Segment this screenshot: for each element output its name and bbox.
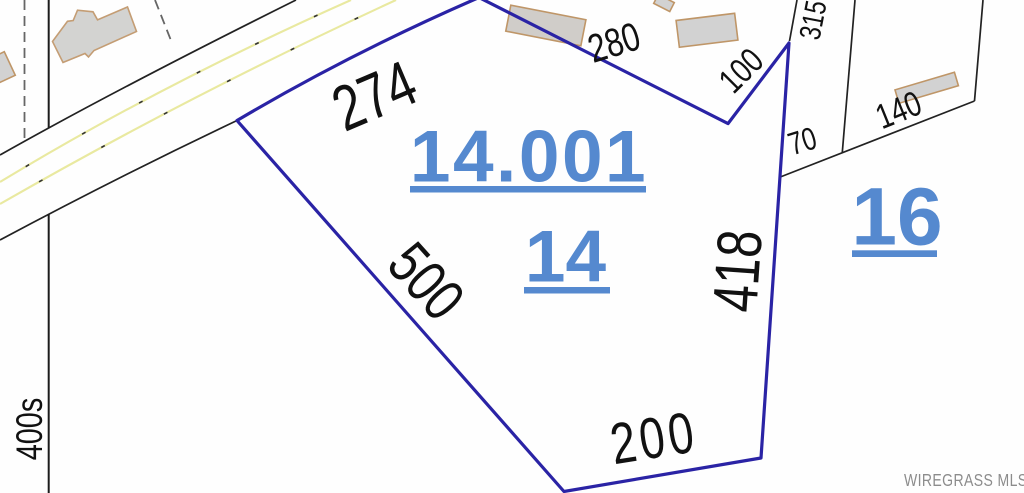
svg-text:200: 200 (606, 400, 702, 478)
svg-text:14.001: 14.001 (410, 117, 648, 198)
svg-text:WIREGRASS MLS: WIREGRASS MLS (904, 470, 1024, 490)
svg-text:400s: 400s (10, 398, 51, 461)
svg-text:16: 16 (851, 172, 942, 263)
svg-text:418: 418 (699, 228, 775, 315)
svg-text:14: 14 (525, 217, 607, 298)
